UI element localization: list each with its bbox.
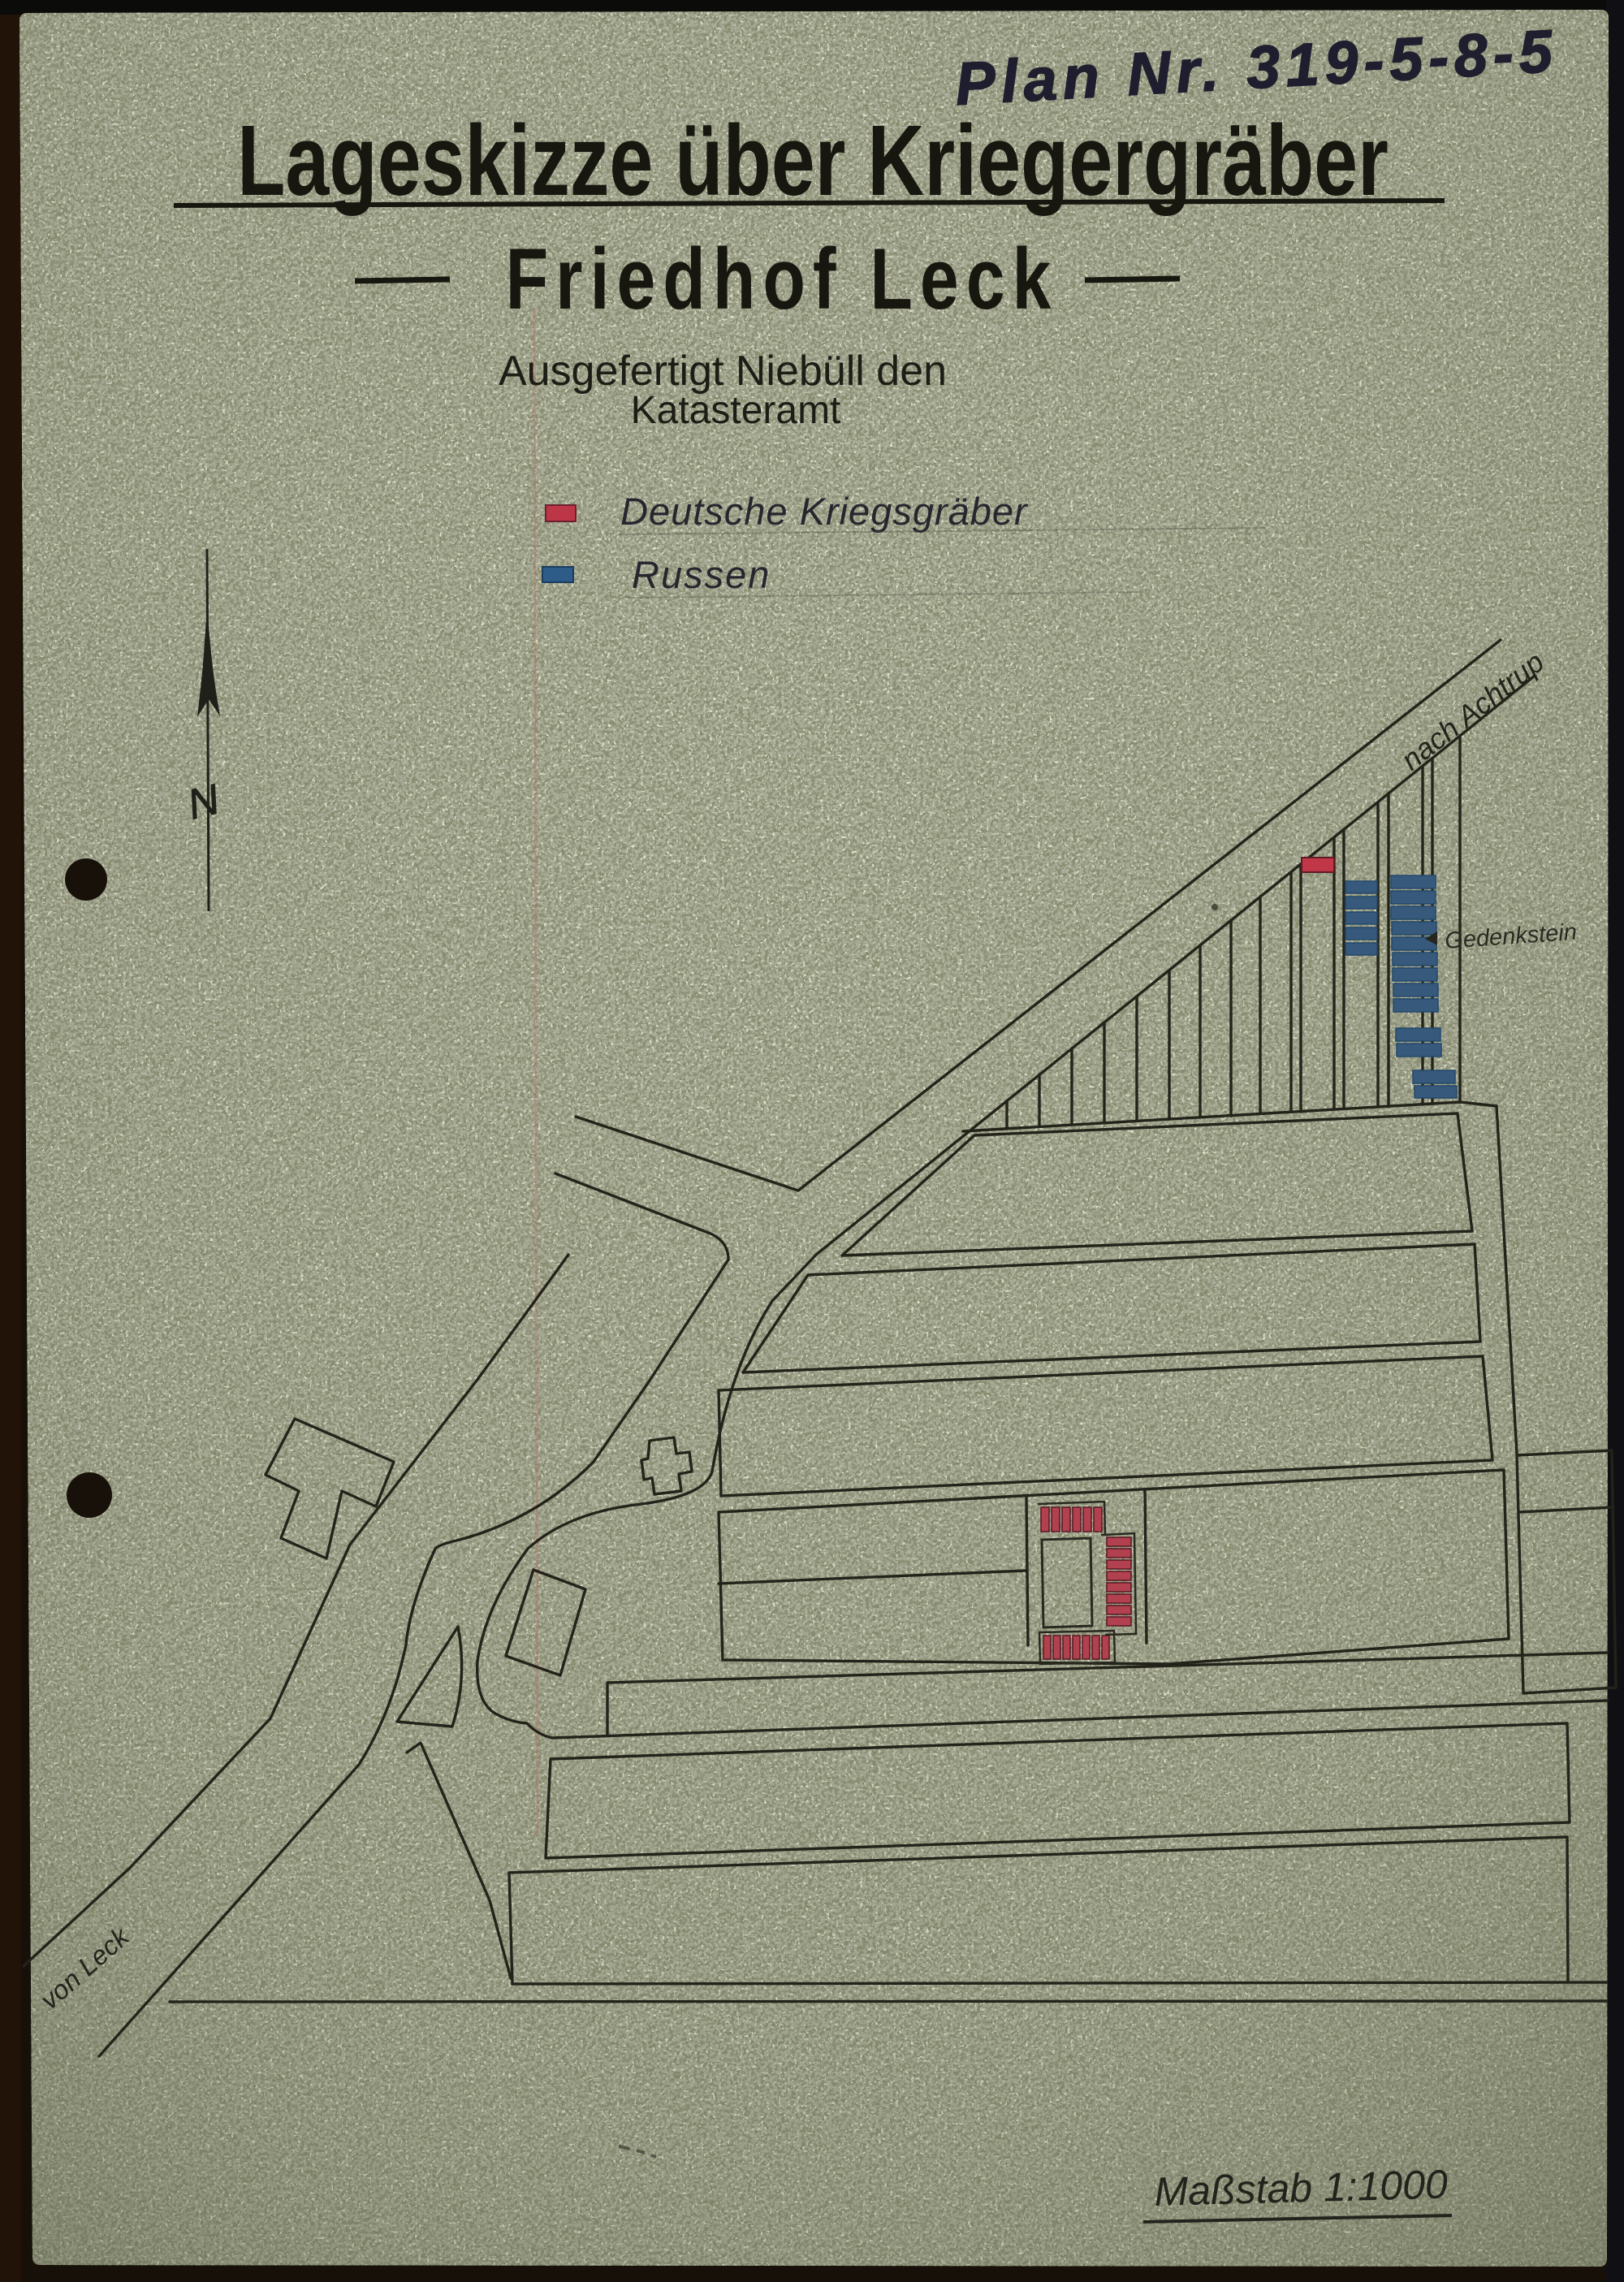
- svg-text:Katasteramt: Katasteramt: [631, 389, 841, 432]
- svg-text:Russen: Russen: [632, 553, 771, 596]
- svg-text:Maßstab 1:1000: Maßstab 1:1000: [1154, 2162, 1449, 2215]
- svg-text:Ausgefertigt Niebüll den: Ausgefertigt Niebüll den: [499, 348, 947, 395]
- svg-text:Friedhof Leck: Friedhof Leck: [506, 230, 1059, 327]
- svg-text:Deutsche Kriegsgräber: Deutsche Kriegsgräber: [620, 490, 1029, 533]
